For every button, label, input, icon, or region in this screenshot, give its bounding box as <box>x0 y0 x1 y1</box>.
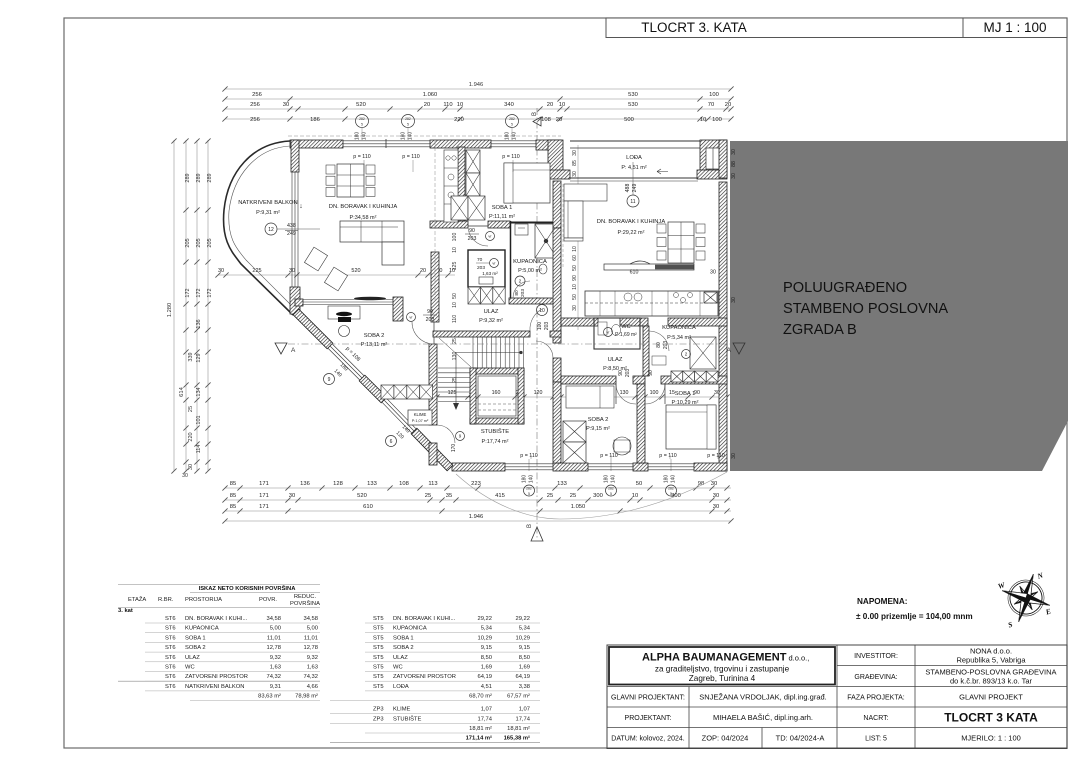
svg-text:339: 339 <box>188 352 194 361</box>
svg-text:ST5: ST5 <box>373 635 384 641</box>
svg-text:20: 20 <box>420 268 426 274</box>
svg-text:2: 2 <box>519 279 522 285</box>
svg-text:9,32: 9,32 <box>270 655 281 661</box>
svg-text:8,50: 8,50 <box>481 655 492 661</box>
svg-text:SOBA 1: SOBA 1 <box>393 635 414 641</box>
svg-text:P:9,15 m²: P:9,15 m² <box>586 426 610 432</box>
svg-text:171: 171 <box>259 493 269 499</box>
svg-text:5: 5 <box>670 492 672 496</box>
svg-text:10: 10 <box>539 308 545 314</box>
svg-text:88: 88 <box>731 161 737 167</box>
svg-text:NONA d.o.o.: NONA d.o.o. <box>970 647 1012 656</box>
svg-text:KLIME: KLIME <box>393 707 411 713</box>
svg-text:85: 85 <box>572 160 578 166</box>
svg-text:171: 171 <box>259 481 269 487</box>
svg-text:STAMBENO-POSLOVNA GRAĐEVINA: STAMBENO-POSLOVNA GRAĐEVINA <box>925 668 1056 677</box>
svg-text:110: 110 <box>443 102 452 108</box>
svg-text:100: 100 <box>452 233 458 242</box>
svg-text:140: 140 <box>671 475 677 484</box>
svg-text:ZATVORENI PROSTOR: ZATVORENI PROSTOR <box>185 674 248 680</box>
svg-text:85: 85 <box>230 504 236 510</box>
svg-text:Republika 5, Vabriga: Republika 5, Vabriga <box>956 656 1026 665</box>
svg-text:10: 10 <box>452 247 458 253</box>
svg-text:R.BR.: R.BR. <box>158 597 174 603</box>
svg-text:74,32: 74,32 <box>266 674 281 680</box>
svg-text:B: B <box>527 524 533 528</box>
svg-text:KLIME: KLIME <box>414 412 427 417</box>
svg-text:20: 20 <box>556 117 562 123</box>
svg-text:30: 30 <box>731 149 737 155</box>
svg-text:P: 4,51 m²: P: 4,51 m² <box>621 165 647 171</box>
svg-text:GLAVNI PROJEKTANT:: GLAVNI PROJEKTANT: <box>611 695 685 702</box>
svg-text:ZP3: ZP3 <box>373 716 384 722</box>
svg-text:1,07: 1,07 <box>481 707 492 713</box>
svg-text:3. kat: 3. kat <box>118 608 133 614</box>
svg-text:25: 25 <box>188 406 194 412</box>
svg-text:ALPHA BAUMANAGEMENT d.o.o.,: ALPHA BAUMANAGEMENT d.o.o., <box>642 652 809 664</box>
svg-text:POLUUGRAĐENO: POLUUGRAĐENO <box>783 280 907 296</box>
svg-text:30: 30 <box>289 493 295 499</box>
svg-text:SOBA 2: SOBA 2 <box>393 645 414 651</box>
svg-text:DATUM: kolovoz, 2024.: DATUM: kolovoz, 2024. <box>611 736 684 743</box>
svg-text:5: 5 <box>511 123 513 127</box>
svg-text:101: 101 <box>196 415 202 424</box>
svg-text:67,57 m²: 67,57 m² <box>507 694 530 700</box>
svg-text:DN. BORAVAK I KUHINJA: DN. BORAVAK I KUHINJA <box>597 219 666 225</box>
svg-text:64,19: 64,19 <box>515 674 530 680</box>
svg-text:180: 180 <box>604 475 610 484</box>
svg-text:p = 110: p = 110 <box>707 453 724 459</box>
svg-text:282: 282 <box>668 487 674 491</box>
svg-text:4,66: 4,66 <box>307 684 318 690</box>
svg-text:35: 35 <box>446 493 452 499</box>
svg-text:ZOP: 04/2024: ZOP: 04/2024 <box>702 734 749 743</box>
svg-text:74,32: 74,32 <box>303 674 318 680</box>
svg-text:25: 25 <box>452 377 458 383</box>
svg-text:203: 203 <box>520 289 526 297</box>
svg-text:129: 129 <box>196 353 202 362</box>
svg-text:KUPAONICA: KUPAONICA <box>513 259 547 265</box>
svg-text:STUBIŠTE: STUBIŠTE <box>393 715 421 722</box>
svg-text:3,38: 3,38 <box>519 684 530 690</box>
svg-text:136: 136 <box>300 481 310 487</box>
svg-text:B: B <box>532 112 538 116</box>
svg-text:NACRT:: NACRT: <box>863 715 888 722</box>
svg-text:114: 114 <box>196 445 202 454</box>
svg-text:ST6: ST6 <box>165 616 176 622</box>
svg-text:186: 186 <box>310 117 320 123</box>
svg-text:25: 25 <box>452 338 458 344</box>
svg-text:P:5,00 m²: P:5,00 m² <box>518 268 542 274</box>
svg-text:20: 20 <box>424 102 430 108</box>
svg-text:256: 256 <box>250 102 260 108</box>
svg-text:282: 282 <box>359 117 365 121</box>
svg-text:5,34: 5,34 <box>519 626 531 632</box>
svg-text:ZATVORENI PROSTOR: ZATVORENI PROSTOR <box>393 674 456 680</box>
svg-text:ST5: ST5 <box>373 674 384 680</box>
svg-text:TLOCRT 3 KATA: TLOCRT 3 KATA <box>944 711 1038 725</box>
svg-text:10: 10 <box>452 302 458 308</box>
svg-text:203: 203 <box>468 236 477 242</box>
svg-text:5: 5 <box>361 123 363 127</box>
svg-text:STAMBENO POSLOVNA: STAMBENO POSLOVNA <box>783 301 948 317</box>
svg-text:ST6: ST6 <box>165 655 176 661</box>
svg-text:1.946: 1.946 <box>469 514 484 520</box>
svg-text:p = 110: p = 110 <box>402 154 419 160</box>
svg-text:100: 100 <box>650 390 659 396</box>
svg-text:SOBA 2: SOBA 2 <box>185 645 206 651</box>
svg-text:68,70 m²: 68,70 m² <box>469 694 492 700</box>
svg-text:30: 30 <box>710 270 716 276</box>
svg-text:180: 180 <box>522 475 528 484</box>
svg-text:ST5: ST5 <box>373 626 384 632</box>
svg-text:25: 25 <box>547 493 553 499</box>
svg-text:1.946: 1.946 <box>469 82 484 88</box>
svg-text:5: 5 <box>407 123 409 127</box>
svg-text:80: 80 <box>514 290 520 296</box>
svg-text:120: 120 <box>534 390 543 396</box>
svg-text:203: 203 <box>426 317 435 323</box>
svg-text:1.060: 1.060 <box>423 92 438 98</box>
svg-text:29,22: 29,22 <box>477 616 492 622</box>
svg-text:340: 340 <box>504 102 514 108</box>
svg-text:80: 80 <box>656 342 662 348</box>
svg-text:108: 108 <box>541 117 551 123</box>
svg-text:17,74: 17,74 <box>477 716 492 722</box>
svg-text:P:29,22 m²: P:29,22 m² <box>618 230 645 236</box>
svg-text:p = 110: p = 110 <box>659 453 676 459</box>
svg-text:9,32: 9,32 <box>307 655 318 661</box>
svg-text:133: 133 <box>367 481 377 487</box>
svg-text:50: 50 <box>636 481 642 487</box>
svg-text:171,14 m²: 171,14 m² <box>466 735 492 742</box>
svg-text:520: 520 <box>357 493 367 499</box>
svg-text:POVRŠINA: POVRŠINA <box>290 600 320 607</box>
svg-text:30: 30 <box>713 504 719 510</box>
svg-text:NATKRIVENI BALKON: NATKRIVENI BALKON <box>185 684 245 690</box>
svg-text:10: 10 <box>572 246 578 252</box>
svg-text:p = 110: p = 110 <box>353 154 370 160</box>
svg-text:za graditeljstvo, trgovinu i: za graditeljstvo, trgovinu i zastupanje <box>655 665 790 674</box>
svg-text:A: A <box>727 347 732 354</box>
svg-text:DN. BORAVAK I KUHI...: DN. BORAVAK I KUHI... <box>185 616 248 622</box>
svg-text:220: 220 <box>454 117 464 123</box>
svg-text:5,34: 5,34 <box>481 626 493 632</box>
svg-text:30: 30 <box>283 102 289 108</box>
svg-text:289: 289 <box>196 173 202 182</box>
svg-text:5,00: 5,00 <box>270 626 281 632</box>
svg-text:25: 25 <box>570 493 576 499</box>
svg-text:30: 30 <box>731 173 737 179</box>
svg-text:TLOCRT 3. KATA: TLOCRT 3. KATA <box>641 20 747 35</box>
svg-text:530: 530 <box>628 92 638 98</box>
svg-text:130: 130 <box>452 352 458 361</box>
svg-text:STUBIŠTE: STUBIŠTE <box>481 428 509 435</box>
svg-text:SOBA 2: SOBA 2 <box>588 417 609 423</box>
svg-text:282: 282 <box>509 117 515 121</box>
svg-text:8,50: 8,50 <box>519 655 530 661</box>
svg-text:1,63: 1,63 <box>307 665 318 671</box>
svg-text:30: 30 <box>188 464 194 470</box>
svg-text:30: 30 <box>713 493 719 499</box>
svg-text:12,78: 12,78 <box>303 645 318 651</box>
svg-text:125: 125 <box>448 390 457 396</box>
svg-text:34,58: 34,58 <box>303 616 318 622</box>
svg-text:170: 170 <box>451 444 457 453</box>
svg-text:78,98 m²: 78,98 m² <box>295 694 318 700</box>
svg-text:289: 289 <box>185 173 191 182</box>
svg-text:ST6: ST6 <box>165 626 176 632</box>
svg-text:256: 256 <box>250 117 260 123</box>
svg-text:83,63 m²: 83,63 m² <box>258 694 281 700</box>
svg-text:P:1,07 m²: P:1,07 m² <box>412 419 429 423</box>
svg-text:30: 30 <box>218 268 224 274</box>
svg-text:SNJEŽANA VRDOLJAK, dipl.ing.gr: SNJEŽANA VRDOLJAK, dipl.ing.građ. <box>699 693 827 702</box>
svg-text:172: 172 <box>196 288 202 297</box>
svg-text:171: 171 <box>259 504 269 510</box>
svg-text:ST5: ST5 <box>373 655 384 661</box>
svg-text:5: 5 <box>528 492 530 496</box>
svg-text:205: 205 <box>207 238 213 247</box>
svg-text:85: 85 <box>230 481 236 487</box>
svg-text:60: 60 <box>572 255 578 261</box>
svg-text:223: 223 <box>471 481 481 487</box>
svg-text:220: 220 <box>188 432 194 441</box>
svg-text:20: 20 <box>725 102 731 108</box>
svg-text:20: 20 <box>547 102 553 108</box>
svg-text:34,58: 34,58 <box>266 616 281 622</box>
svg-text:160: 160 <box>492 390 501 396</box>
svg-text:MJERILO: 1 : 100: MJERILO: 1 : 100 <box>961 734 1021 743</box>
svg-text:256: 256 <box>252 92 262 98</box>
svg-text:488: 488 <box>625 184 631 193</box>
svg-text:30: 30 <box>731 453 737 459</box>
svg-text:249: 249 <box>287 231 296 237</box>
svg-text:ULAZ: ULAZ <box>185 655 200 661</box>
svg-text:ETAŽA: ETAŽA <box>128 595 146 603</box>
svg-text:9,31: 9,31 <box>270 684 281 690</box>
svg-text:1,63: 1,63 <box>270 665 281 671</box>
svg-text:ISKAZ NETO KORISNIH POVRŠINA: ISKAZ NETO KORISNIH POVRŠINA <box>199 584 297 592</box>
svg-text:140: 140 <box>529 475 535 484</box>
svg-text:P:9,31 m²: P:9,31 m² <box>256 210 280 216</box>
svg-text:ST6: ST6 <box>165 645 176 651</box>
svg-text:SOBA 1: SOBA 1 <box>675 391 696 397</box>
svg-text:9: 9 <box>328 377 331 383</box>
svg-text:WC: WC <box>621 324 630 330</box>
svg-text:ULAZ: ULAZ <box>484 309 499 315</box>
svg-text:P:5,34 m²: P:5,34 m² <box>667 335 691 341</box>
svg-text:ULAZ: ULAZ <box>608 357 623 363</box>
svg-text:17,74: 17,74 <box>515 716 530 722</box>
svg-text:KUPAONICA: KUPAONICA <box>662 325 696 331</box>
svg-text:10: 10 <box>700 117 706 123</box>
svg-text:P:10,29 m²: P:10,29 m² <box>672 400 699 406</box>
svg-text:172: 172 <box>185 288 191 297</box>
svg-text:SOBA 2: SOBA 2 <box>364 333 385 339</box>
svg-text:10: 10 <box>632 493 638 499</box>
svg-text:11,01: 11,01 <box>267 635 281 641</box>
svg-text:ZP3: ZP3 <box>373 707 384 713</box>
svg-text:P:17,74 m²: P:17,74 m² <box>482 439 509 445</box>
svg-text:INVESTITOR:: INVESTITOR: <box>854 653 898 660</box>
svg-text:10,29: 10,29 <box>477 635 492 641</box>
svg-text:50: 50 <box>572 294 578 300</box>
svg-text:110: 110 <box>452 315 458 323</box>
svg-text:133: 133 <box>557 481 567 487</box>
svg-text:LOĐA: LOĐA <box>393 684 409 690</box>
svg-text:30: 30 <box>572 305 578 311</box>
svg-text:MIHAELA BAŠIĆ, dipl.ing.arh.: MIHAELA BAŠIĆ, dipl.ing.arh. <box>713 713 813 722</box>
svg-text:12,78: 12,78 <box>266 645 281 651</box>
svg-text:ST6: ST6 <box>165 665 176 671</box>
svg-text:415: 415 <box>495 493 505 499</box>
svg-text:do k.č.br. 893/13 k.o. Tar: do k.č.br. 893/13 k.o. Tar <box>950 677 1032 686</box>
svg-text:180: 180 <box>664 475 670 484</box>
svg-text:205: 205 <box>196 238 202 247</box>
svg-text:300: 300 <box>593 493 603 499</box>
svg-text:A: A <box>291 347 296 354</box>
svg-text:Zagreb, Turinina 4: Zagreb, Turinina 4 <box>689 674 756 683</box>
svg-text:POVR.: POVR. <box>259 597 277 603</box>
svg-text:130: 130 <box>620 390 629 396</box>
svg-text:10: 10 <box>559 102 565 108</box>
svg-text:90: 90 <box>427 309 433 315</box>
svg-text:± 0.00 prizemlje = 104,00 mnm: ± 0.00 prizemlje = 104,00 mnm <box>856 612 973 621</box>
svg-text:MJ 1 : 100: MJ 1 : 100 <box>983 20 1046 35</box>
svg-text:50: 50 <box>452 293 458 299</box>
svg-text:128: 128 <box>333 481 343 487</box>
svg-text:203: 203 <box>625 369 631 378</box>
svg-text:p = 110: p = 110 <box>520 453 537 459</box>
svg-text:125: 125 <box>452 262 458 271</box>
svg-text:100: 100 <box>709 92 719 98</box>
svg-text:TD: 04/2024-A: TD: 04/2024-A <box>776 734 825 743</box>
svg-text:90: 90 <box>469 228 475 234</box>
svg-text:30: 30 <box>572 150 578 156</box>
svg-text:1.280: 1.280 <box>167 303 173 318</box>
svg-text:25: 25 <box>425 493 431 499</box>
svg-text:100: 100 <box>712 117 722 123</box>
svg-text:REDUC.: REDUC. <box>294 594 317 600</box>
svg-text:DN. BORAVAK I KUHI...: DN. BORAVAK I KUHI... <box>393 616 456 622</box>
svg-text:90: 90 <box>618 370 624 376</box>
svg-text:KUPAONICA: KUPAONICA <box>393 626 427 632</box>
svg-text:438: 438 <box>287 223 296 229</box>
svg-text:1.050: 1.050 <box>571 504 586 510</box>
svg-text:FAZA PROJEKTA:: FAZA PROJEKTA: <box>847 695 904 702</box>
svg-text:P:34,58 m²: P:34,58 m² <box>350 215 377 221</box>
svg-text:PROSTORIJA: PROSTORIJA <box>185 597 222 603</box>
svg-text:ST6: ST6 <box>165 635 176 641</box>
svg-text:282: 282 <box>608 487 614 491</box>
svg-text:203: 203 <box>544 322 550 331</box>
svg-text:WC: WC <box>393 665 403 671</box>
svg-text:ZGRADA B: ZGRADA B <box>783 322 857 338</box>
svg-text:GRAĐEVINA:: GRAĐEVINA: <box>854 674 897 681</box>
svg-text:1,63 m²: 1,63 m² <box>482 271 498 276</box>
svg-text:ST5: ST5 <box>373 616 384 622</box>
svg-text:140: 140 <box>611 475 617 484</box>
svg-text:108: 108 <box>399 481 409 487</box>
svg-text:90: 90 <box>572 275 578 281</box>
svg-text:P:1,69 m²: P:1,69 m² <box>615 332 637 338</box>
svg-text:1,07: 1,07 <box>519 707 530 713</box>
svg-text:P:9,32 m²: P:9,32 m² <box>479 318 503 324</box>
svg-text:113: 113 <box>428 481 437 487</box>
svg-text:KUPAONICA: KUPAONICA <box>185 626 219 632</box>
svg-text:11: 11 <box>630 199 635 205</box>
svg-text:70: 70 <box>477 257 483 263</box>
svg-text:1,69: 1,69 <box>519 665 530 671</box>
svg-text:ST5: ST5 <box>373 684 384 690</box>
svg-text:203: 203 <box>663 341 669 350</box>
svg-text:ST6: ST6 <box>165 674 176 680</box>
svg-text:520: 520 <box>351 268 360 274</box>
svg-text:205: 205 <box>185 238 191 247</box>
svg-text:LOĐA: LOĐA <box>626 155 642 161</box>
svg-text:WC: WC <box>185 665 195 671</box>
svg-text:10: 10 <box>572 284 578 290</box>
svg-text:282: 282 <box>526 487 532 491</box>
svg-text:P:11,11 m²: P:11,11 m² <box>489 214 515 220</box>
svg-text:1,69: 1,69 <box>481 665 492 671</box>
svg-text:NAPOMENA:: NAPOMENA: <box>857 597 908 606</box>
svg-text:10: 10 <box>457 102 463 108</box>
svg-text:DN. BORAVAK I KUHINJA: DN. BORAVAK I KUHINJA <box>329 204 398 210</box>
svg-text:ULAZ: ULAZ <box>393 655 408 661</box>
svg-text:PROJEKTANT:: PROJEKTANT: <box>625 715 672 722</box>
svg-text:282: 282 <box>405 117 411 121</box>
svg-text:520: 520 <box>356 102 366 108</box>
svg-text:172: 172 <box>207 288 213 297</box>
svg-text:SOBA 1: SOBA 1 <box>492 205 513 211</box>
svg-text:134: 134 <box>196 387 202 396</box>
svg-text:610: 610 <box>630 270 639 276</box>
svg-text:30: 30 <box>711 481 717 487</box>
svg-text:90: 90 <box>648 370 654 376</box>
svg-text:p = 110: p = 110 <box>600 453 617 459</box>
svg-text:4,51: 4,51 <box>481 684 492 690</box>
svg-text:9,15: 9,15 <box>519 645 530 651</box>
svg-text:ST5: ST5 <box>373 645 384 651</box>
svg-text:136: 136 <box>196 319 202 328</box>
svg-text:18,81 m²: 18,81 m² <box>469 726 492 732</box>
svg-text:70: 70 <box>708 102 714 108</box>
svg-text:SOBA 1: SOBA 1 <box>185 635 206 641</box>
svg-text:GLAVNI PROJEKT: GLAVNI PROJEKT <box>959 693 1023 702</box>
svg-text:64,19: 64,19 <box>477 674 492 680</box>
svg-text:5,00: 5,00 <box>307 626 318 632</box>
svg-text:P:13,11 m²: P:13,11 m² <box>361 342 388 348</box>
svg-text:11,01: 11,01 <box>304 635 318 641</box>
svg-text:5: 5 <box>610 492 612 496</box>
svg-text:614: 614 <box>179 386 185 396</box>
svg-text:85: 85 <box>230 493 236 499</box>
svg-text:↓: ↓ <box>299 203 303 210</box>
svg-text:289: 289 <box>207 173 213 182</box>
svg-text:ST6: ST6 <box>165 684 176 690</box>
svg-text:30: 30 <box>731 297 737 303</box>
svg-text:100: 100 <box>537 322 543 331</box>
svg-text:30: 30 <box>572 171 578 177</box>
svg-text:ST5: ST5 <box>373 665 384 671</box>
svg-text:165,38 m²: 165,38 m² <box>504 735 530 742</box>
svg-text:50: 50 <box>572 265 578 271</box>
svg-text:30: 30 <box>182 473 188 479</box>
svg-text:9,15: 9,15 <box>481 645 492 651</box>
svg-text:500: 500 <box>624 117 634 123</box>
